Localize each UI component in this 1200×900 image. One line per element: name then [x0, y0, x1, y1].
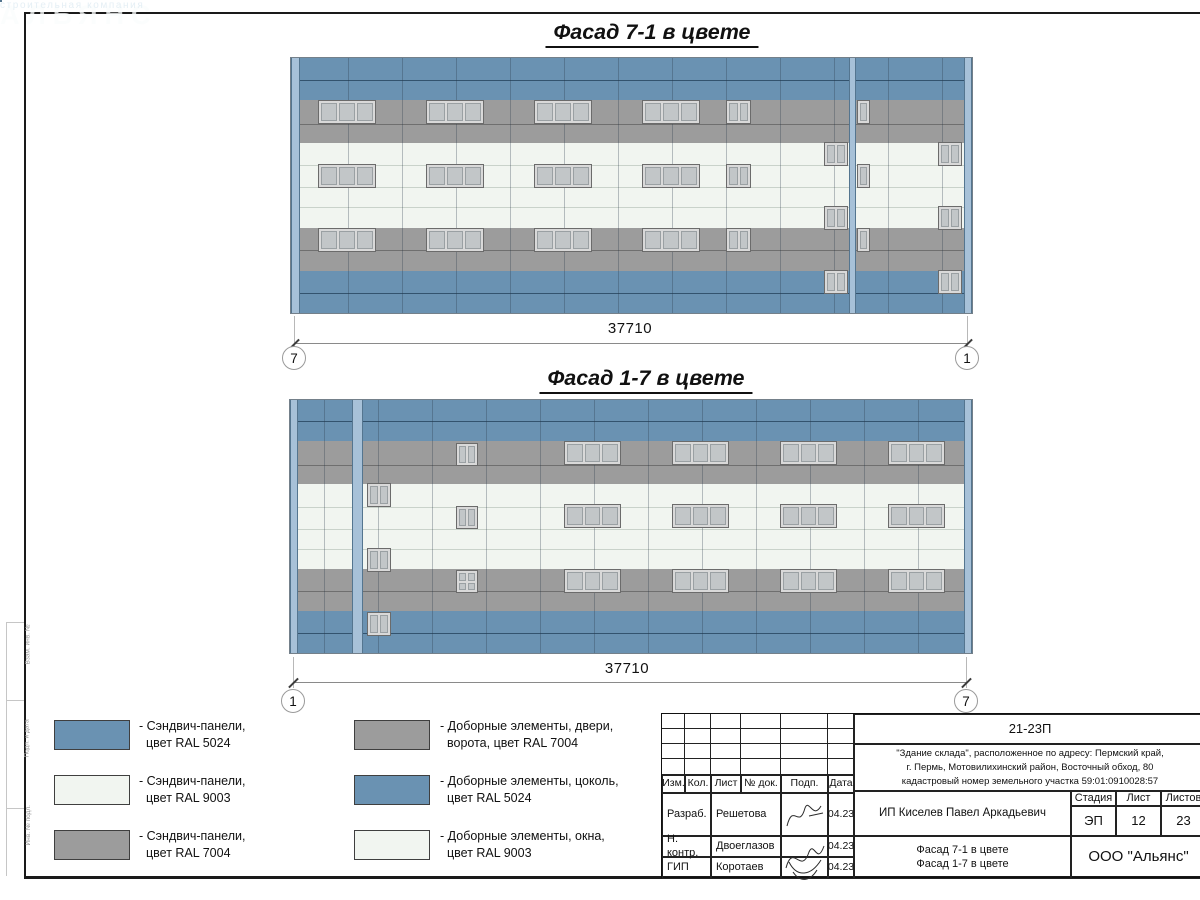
col-data: Дата [828, 775, 854, 793]
legend-label-line2: цвет RAL 9003 [139, 790, 245, 807]
signature-razrab [781, 794, 828, 836]
legend-swatch-6 [354, 830, 430, 860]
revision-grid-cell [781, 729, 828, 744]
col-dok: № док. [741, 775, 781, 793]
date-nkontr: 04.23 [828, 836, 854, 857]
revision-grid-cell [685, 729, 711, 744]
revision-grid-cell [685, 714, 711, 729]
revision-grid-cell [781, 714, 828, 729]
legend-label-line2: ворота, цвет RAL 7004 [440, 735, 613, 752]
legend-label-line2: цвет RAL 7004 [139, 845, 245, 862]
address-line-2: г. Пермь, Мотовилихинский район, Восточн… [907, 761, 1154, 775]
legend-label-line1: - Доборные элементы, окна, [440, 828, 605, 845]
legend-label-1: - Сэндвич-панели,цвет RAL 5024 [139, 718, 245, 751]
role-razrab: Разраб. [662, 793, 711, 836]
subject-line-2: Фасад 1-7 в цвете [916, 858, 1008, 872]
revision-grid-cell [711, 744, 741, 759]
col-list: Лист [711, 775, 741, 793]
sheet-label: Лист [1116, 791, 1161, 806]
legend-label-3: - Сэндвич-панели,цвет RAL 7004 [139, 828, 245, 861]
company-name: ООО "Альянс" [1071, 836, 1200, 879]
date-razrab: 04.23 [828, 793, 854, 836]
revision-grid-cell [741, 759, 781, 775]
role-gip: ГИП [662, 857, 711, 879]
col-kol: Кол. [685, 775, 711, 793]
revision-grid-cell [828, 744, 854, 759]
date-gip: 04.23 [828, 857, 854, 879]
revision-grid-cell [685, 744, 711, 759]
revision-grid-cell [711, 714, 741, 729]
legend-label-6: - Доборные элементы, окна,цвет RAL 9003 [440, 828, 605, 861]
sheet-value: 12 [1116, 806, 1161, 836]
legend-label-line1: - Сэндвич-панели, [139, 718, 245, 735]
legend-label-line1: - Доборные элементы, двери, [440, 718, 613, 735]
revision-grid-cell [662, 714, 685, 729]
revision-grid-cell [741, 729, 781, 744]
legend-label-4: - Доборные элементы, двери,ворота, цвет … [440, 718, 613, 751]
stage-label: Стадия [1071, 791, 1116, 806]
legend-label-line2: цвет RAL 9003 [440, 845, 605, 862]
revision-grid-cell [828, 714, 854, 729]
legend-swatch-2 [54, 775, 130, 805]
name-razrab: Решетова [711, 793, 781, 836]
stage-value: ЭП [1071, 806, 1116, 836]
name-gip: Коротаев [711, 857, 781, 879]
revision-grid-cell [662, 729, 685, 744]
revision-grid-cell [741, 714, 781, 729]
legend-swatch-4 [354, 720, 430, 750]
address-line-1: "Здание склада", расположенное по адресу… [896, 747, 1163, 761]
revision-grid-cell [828, 729, 854, 744]
legend-swatch-1 [54, 720, 130, 750]
revision-grid-cell [685, 759, 711, 775]
revision-grid-cell [662, 759, 685, 775]
revision-grid-cell [781, 744, 828, 759]
col-podp: Подп. [781, 775, 828, 793]
project-address: "Здание склада", расположенное по адресу… [854, 744, 1200, 791]
address-line-3: кадастровый номер земельного участка 59:… [902, 775, 1158, 789]
sheets-value: 23 [1161, 806, 1200, 836]
revision-grid-cell [781, 759, 828, 775]
legend-label-line1: - Сэндвич-панели, [139, 828, 245, 845]
legend-label-line1: - Сэндвич-панели, [139, 773, 245, 790]
legend-label-5: - Доборные элементы, цоколь,цвет RAL 502… [440, 773, 619, 806]
revision-grid-cell [711, 729, 741, 744]
legend-label-line2: цвет RAL 5024 [440, 790, 619, 807]
drawing-sheet: Взам. инв. №Подп. и датаИнв. № подл. Фас… [0, 0, 1200, 900]
revision-grid-cell [662, 744, 685, 759]
revision-grid-cell [741, 744, 781, 759]
project-code: 21-23П [854, 714, 1200, 744]
title-block: Изм. Кол. Лист № док. Подп. Дата Разраб.… [661, 713, 1200, 878]
signature-nkontr-gip [781, 836, 828, 879]
sheet-subject: Фасад 7-1 в цвете Фасад 1-7 в цвете [854, 836, 1071, 879]
subject-line-1: Фасад 7-1 в цвете [916, 844, 1008, 858]
revision-grid [662, 714, 854, 775]
client-name: ИП Киселев Павел Аркадьевич [854, 791, 1071, 836]
legend-swatch-5 [354, 775, 430, 805]
legend-label-2: - Сэндвич-панели,цвет RAL 9003 [139, 773, 245, 806]
role-nkontr: Н. контр. [662, 836, 711, 857]
legend-label-line1: - Доборные элементы, цоколь, [440, 773, 619, 790]
legend-label-line2: цвет RAL 5024 [139, 735, 245, 752]
col-izm: Изм. [662, 775, 685, 793]
name-nkontr: Двоеглазов [711, 836, 781, 857]
sheets-label: Листов [1161, 791, 1200, 806]
revision-grid-cell [711, 759, 741, 775]
revision-grid-cell [828, 759, 854, 775]
legend-swatch-3 [54, 830, 130, 860]
